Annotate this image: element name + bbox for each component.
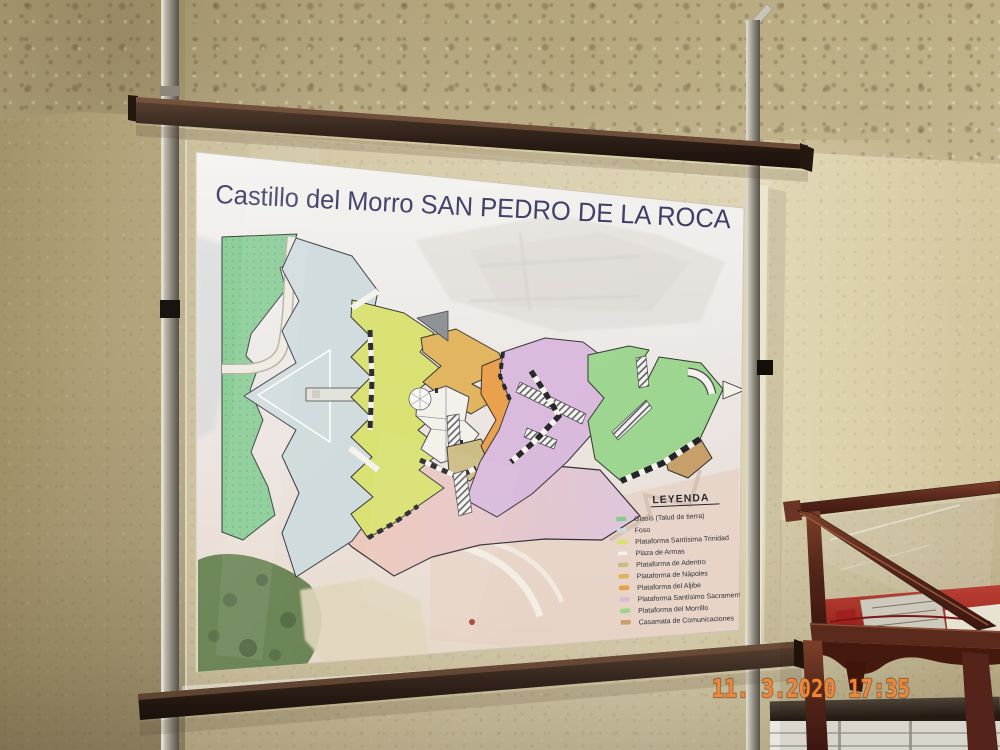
timestamp-text: 11. 3.2020 17:35 bbox=[712, 674, 910, 703]
sign-panel: Castillo del Morro SAN PEDRO DE LA ROCA … bbox=[128, 0, 814, 750]
right-hanger-bar bbox=[746, 20, 760, 750]
glass-panel bbox=[167, 126, 770, 700]
display-case bbox=[780, 481, 1000, 750]
right-bar-clip bbox=[757, 360, 773, 375]
top-rail-right-cap bbox=[800, 143, 814, 172]
camera-timestamp: 11. 3.2020 17:35 11. 3.2020 17:35 bbox=[712, 674, 910, 703]
left-bar-clip bbox=[160, 300, 180, 318]
photo-scene: Castillo del Morro SAN PEDRO DE LA ROCA … bbox=[0, 0, 1000, 750]
left-bar-joint bbox=[160, 86, 180, 96]
scene-drawing: Castillo del Morro SAN PEDRO DE LA ROCA … bbox=[0, 0, 1000, 750]
